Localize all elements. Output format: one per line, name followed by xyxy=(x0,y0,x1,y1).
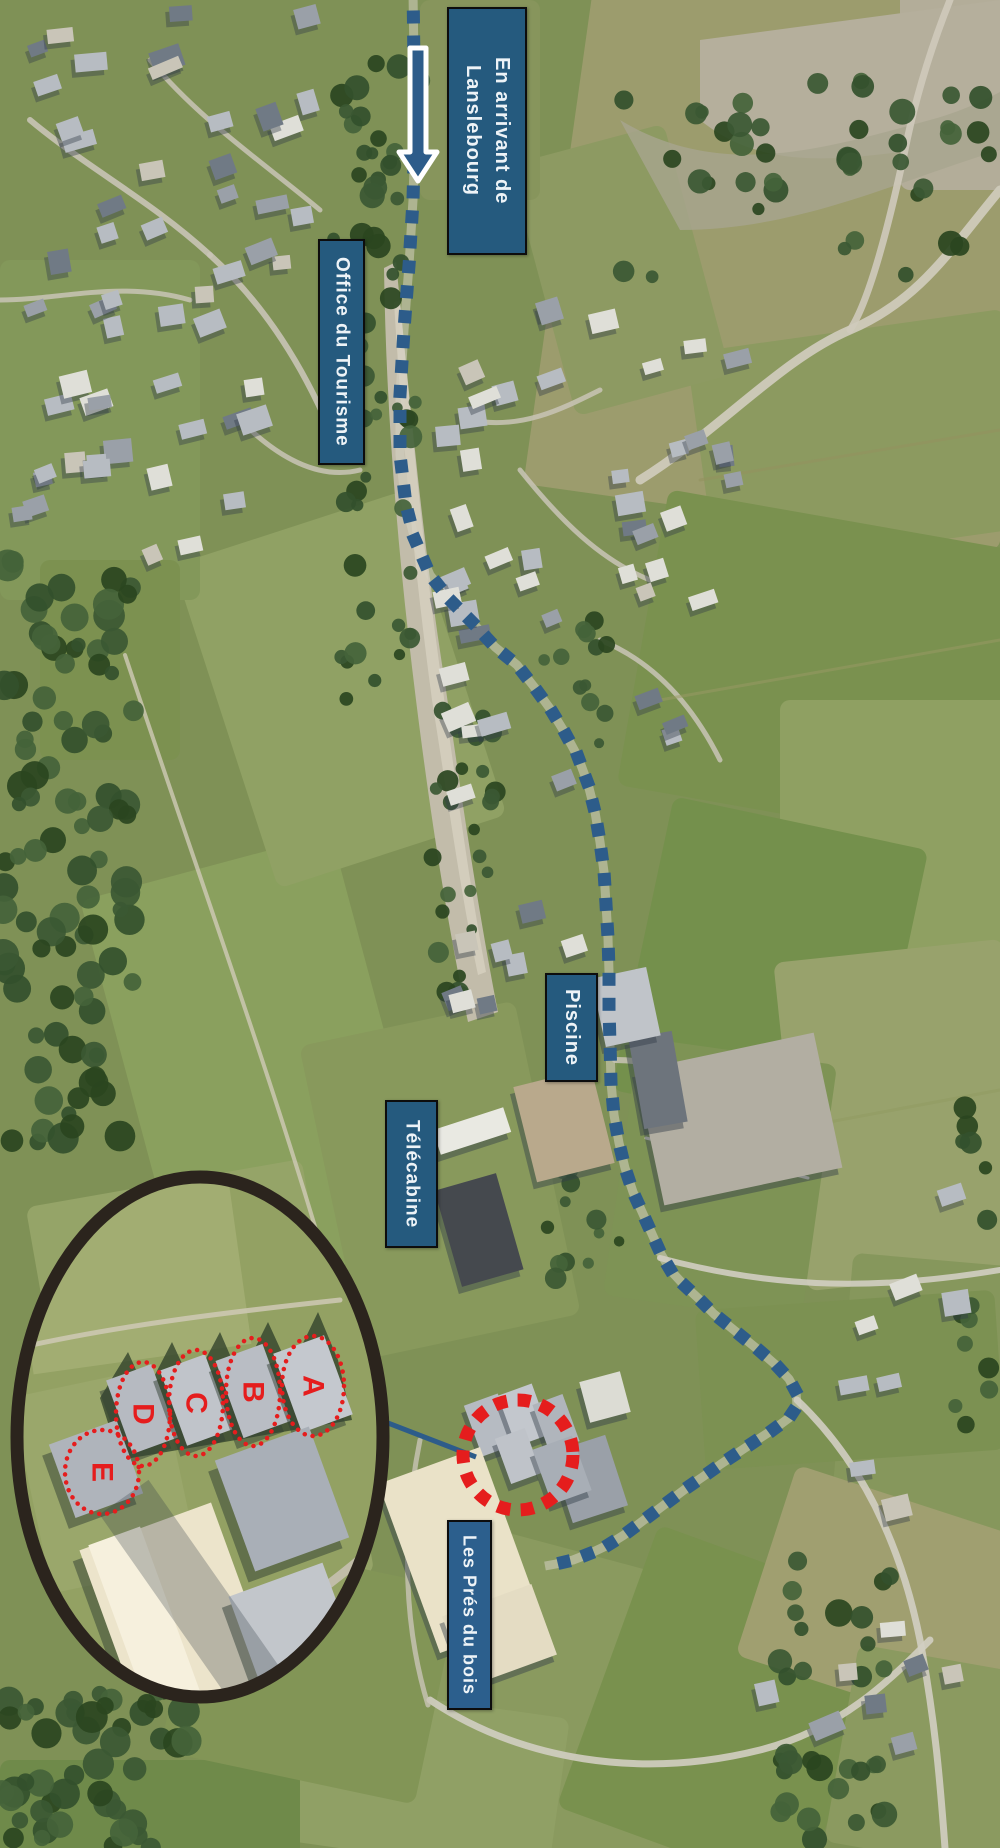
tree-blob xyxy=(685,102,707,124)
route-dash xyxy=(402,260,416,274)
route-dash xyxy=(405,210,419,224)
building xyxy=(942,1664,964,1685)
tree-blob xyxy=(594,738,604,748)
tree-blob xyxy=(778,1668,796,1686)
tree-blob xyxy=(797,1808,821,1832)
building xyxy=(864,1694,887,1715)
tree-blob xyxy=(16,911,37,932)
building-marker-C: C xyxy=(180,1392,213,1414)
building xyxy=(272,255,291,271)
tree-blob xyxy=(825,1599,853,1627)
tree-blob xyxy=(875,1660,892,1677)
tree-blob xyxy=(387,54,411,78)
tree-blob xyxy=(394,649,405,660)
tree-blob xyxy=(392,619,405,632)
tree-blob xyxy=(356,145,372,161)
tree-blob xyxy=(123,1757,146,1780)
building xyxy=(83,459,111,479)
tree-blob xyxy=(688,169,712,193)
tree-blob xyxy=(849,120,868,139)
route-dash xyxy=(407,10,420,23)
building xyxy=(435,425,461,447)
tree-blob xyxy=(764,173,783,192)
tree-blob xyxy=(101,628,128,655)
tree-blob xyxy=(868,1756,885,1773)
tree-blob xyxy=(82,711,110,739)
tree-blob xyxy=(957,1336,973,1352)
tree-blob xyxy=(77,885,100,908)
tree-blob xyxy=(541,1221,554,1234)
tree-blob xyxy=(32,939,50,957)
tree-blob xyxy=(802,1751,821,1770)
route-dash xyxy=(594,847,609,862)
tree-blob xyxy=(403,566,417,580)
route-dash xyxy=(598,873,612,887)
tree-blob xyxy=(940,120,955,135)
tree-blob xyxy=(123,700,144,721)
building-marker-D: D xyxy=(127,1403,160,1425)
tree-blob xyxy=(756,143,775,162)
tree-blob xyxy=(366,234,390,258)
tree-blob xyxy=(17,1773,34,1790)
tree-blob xyxy=(913,178,933,198)
tree-blob xyxy=(28,1027,44,1043)
tree-blob xyxy=(351,167,367,183)
tree-blob xyxy=(3,1828,24,1848)
building xyxy=(169,5,193,22)
building xyxy=(195,286,214,304)
tree-blob xyxy=(440,887,456,903)
tree-blob xyxy=(980,1380,998,1398)
tree-blob xyxy=(111,866,142,897)
tree-blob xyxy=(12,797,26,811)
tree-blob xyxy=(613,261,635,283)
label-pool: Piscine xyxy=(545,973,598,1082)
route-dash xyxy=(602,948,615,961)
tree-blob xyxy=(54,711,73,730)
tree-blob xyxy=(424,848,442,866)
tree-blob xyxy=(81,1042,107,1068)
tree-blob xyxy=(0,896,17,924)
label-arrival-line1: En arrivant de xyxy=(487,57,516,204)
tree-blob xyxy=(942,86,960,104)
building xyxy=(47,249,72,275)
tree-blob xyxy=(473,849,487,863)
tree-blob xyxy=(598,636,615,653)
building xyxy=(941,1289,971,1317)
tree-blob xyxy=(78,914,108,944)
tree-blob xyxy=(118,585,137,604)
tree-blob xyxy=(578,624,596,642)
tree-blob xyxy=(614,1236,624,1246)
tree-blob xyxy=(872,1802,898,1828)
building xyxy=(838,1663,858,1682)
route-dash xyxy=(394,410,407,423)
tree-blob xyxy=(892,154,909,171)
tree-blob xyxy=(124,973,142,991)
tree-blob xyxy=(360,472,371,483)
tree-blob xyxy=(25,583,53,611)
tree-blob xyxy=(851,1762,870,1781)
tree-blob xyxy=(428,942,449,963)
building-marker-E: E xyxy=(86,1462,119,1482)
tree-blob xyxy=(453,970,466,983)
building xyxy=(611,469,629,484)
tree-blob xyxy=(55,788,80,813)
tree-blob xyxy=(60,1114,84,1138)
tree-blob xyxy=(61,603,89,631)
tree-blob xyxy=(96,1697,113,1714)
building xyxy=(683,338,707,354)
tree-blob xyxy=(752,203,764,215)
tree-blob xyxy=(383,155,398,170)
label-gondola: Télécabine xyxy=(385,1100,438,1248)
tree-blob xyxy=(171,1726,201,1756)
tree-blob xyxy=(775,1792,799,1816)
tree-blob xyxy=(409,396,422,409)
building xyxy=(12,505,33,522)
tree-blob xyxy=(456,762,469,775)
route-dash xyxy=(407,185,420,198)
tree-blob xyxy=(614,90,633,109)
tree-blob xyxy=(476,765,489,778)
tree-blob xyxy=(596,705,613,722)
tree-blob xyxy=(2,551,24,573)
tree-blob xyxy=(339,692,353,706)
tree-blob xyxy=(87,806,113,832)
tree-blob xyxy=(581,693,599,711)
tree-blob xyxy=(586,1210,606,1230)
tree-blob xyxy=(787,1604,804,1621)
tree-blob xyxy=(74,987,94,1007)
building xyxy=(521,548,543,571)
route-dash xyxy=(599,898,613,912)
tree-blob xyxy=(10,848,27,865)
tree-blob xyxy=(105,1121,136,1152)
tree-blob xyxy=(851,75,874,98)
tree-blob xyxy=(960,1132,982,1154)
route-dash xyxy=(606,1097,620,1111)
tree-blob xyxy=(64,1765,84,1785)
route-dash xyxy=(398,310,412,324)
tree-blob xyxy=(727,112,752,137)
tree-blob xyxy=(950,237,969,256)
access-map: ABCDE En arrivant de Lanslebourg Office … xyxy=(0,0,1000,1848)
tree-blob xyxy=(579,679,591,691)
tree-blob xyxy=(351,499,363,511)
building xyxy=(74,52,108,73)
tree-blob xyxy=(779,1750,803,1774)
tree-blob xyxy=(881,1567,899,1585)
tree-blob xyxy=(1,1129,24,1152)
route-dash xyxy=(395,360,409,374)
tree-blob xyxy=(828,1778,849,1799)
tree-blob xyxy=(898,267,914,283)
aerial-backdrop: ABCDE xyxy=(0,0,1000,1848)
tree-blob xyxy=(356,601,375,620)
building xyxy=(158,303,186,326)
tree-blob xyxy=(538,654,550,666)
tree-blob xyxy=(977,1210,997,1230)
road xyxy=(30,120,210,255)
route-dash xyxy=(400,285,414,299)
tree-blob xyxy=(370,130,387,147)
tree-blob xyxy=(948,1399,962,1413)
tree-blob xyxy=(838,242,852,256)
tree-blob xyxy=(807,73,828,94)
tree-blob xyxy=(435,904,449,918)
tree-blob xyxy=(33,686,56,709)
tree-blob xyxy=(560,1196,571,1207)
tree-blob xyxy=(404,628,416,640)
building xyxy=(455,931,479,954)
tree-blob xyxy=(83,1748,114,1779)
tree-blob xyxy=(735,172,755,192)
building xyxy=(46,27,74,44)
route-dash xyxy=(603,1023,616,1036)
building-marker-A: A xyxy=(297,1375,330,1397)
route-dash xyxy=(603,973,616,986)
tree-blob xyxy=(583,1258,594,1269)
route-dash xyxy=(603,998,616,1011)
tree-blob xyxy=(24,1056,52,1084)
tree-blob xyxy=(12,1812,28,1828)
label-arrival: En arrivant de Lanslebourg xyxy=(447,7,527,255)
tree-blob xyxy=(840,152,862,174)
tree-blob xyxy=(978,1357,999,1378)
tree-blob xyxy=(363,176,387,200)
tree-blob xyxy=(105,666,119,680)
tree-blob xyxy=(464,885,476,897)
route-dash xyxy=(591,822,606,837)
tree-blob xyxy=(99,947,127,975)
building xyxy=(223,491,246,510)
tree-blob xyxy=(794,1662,812,1680)
label-tourism-office: Office du Tourisme xyxy=(318,239,365,465)
tree-blob xyxy=(888,134,907,153)
route-dash xyxy=(404,235,418,249)
tree-blob xyxy=(137,1694,156,1713)
tree-blob xyxy=(979,1161,992,1174)
tree-blob xyxy=(889,99,915,125)
tree-blob xyxy=(35,1086,64,1115)
tree-blob xyxy=(553,649,570,666)
tree-blob xyxy=(545,1268,567,1290)
tree-blob xyxy=(344,75,369,100)
tree-blob xyxy=(368,55,385,72)
tree-blob xyxy=(860,1636,875,1651)
tree-blob xyxy=(24,839,47,862)
tree-blob xyxy=(430,782,442,794)
route-dash xyxy=(601,922,615,936)
tree-blob xyxy=(344,642,366,664)
tree-blob xyxy=(732,93,753,114)
tree-blob xyxy=(16,731,33,748)
route-dash xyxy=(604,1048,617,1061)
tree-blob xyxy=(339,104,354,119)
tree-blob xyxy=(18,1704,35,1721)
building xyxy=(880,1621,906,1638)
route-dash xyxy=(397,484,411,498)
tree-blob xyxy=(794,1622,808,1636)
tree-blob xyxy=(55,654,75,674)
tree-blob xyxy=(87,1781,113,1807)
tree-blob xyxy=(31,1718,61,1748)
route-dash xyxy=(394,435,407,448)
tree-blob xyxy=(71,638,85,652)
tree-blob xyxy=(646,270,659,283)
tree-blob xyxy=(482,866,494,878)
tree-blob xyxy=(351,106,371,126)
building-marker-B: B xyxy=(237,1381,270,1403)
tree-blob xyxy=(85,1066,106,1087)
route-dash xyxy=(604,1073,617,1086)
tree-blob xyxy=(783,1581,802,1600)
tree-blob xyxy=(110,1818,138,1846)
tree-blob xyxy=(34,1830,50,1846)
tree-blob xyxy=(50,985,74,1009)
route-dash xyxy=(609,1121,624,1136)
label-arrival-line2: Lanslebourg xyxy=(458,57,487,204)
tree-blob xyxy=(67,856,97,886)
label-residence: Les Prés du bois xyxy=(447,1520,492,1710)
tree-blob xyxy=(374,391,387,404)
tree-blob xyxy=(32,624,58,650)
tree-blob xyxy=(47,1811,73,1837)
tree-blob xyxy=(22,711,42,731)
tree-blob xyxy=(482,793,499,810)
route-dash xyxy=(394,459,408,473)
tree-blob xyxy=(957,1416,975,1434)
tree-blob xyxy=(344,554,367,577)
tree-blob xyxy=(851,1606,874,1629)
tree-blob xyxy=(751,118,769,136)
tree-blob xyxy=(848,1814,865,1831)
route-dash xyxy=(393,385,407,399)
tree-blob xyxy=(390,192,404,206)
tree-blob xyxy=(380,287,402,309)
tree-blob xyxy=(468,824,480,836)
tree-blob xyxy=(368,674,381,687)
tree-blob xyxy=(981,146,997,162)
tree-blob xyxy=(788,1552,807,1571)
tree-blob xyxy=(969,86,992,109)
tree-blob xyxy=(663,150,681,168)
building xyxy=(244,377,265,397)
building xyxy=(290,206,314,227)
tree-blob xyxy=(370,408,382,420)
route-dash xyxy=(396,335,410,349)
building xyxy=(460,448,482,472)
tree-blob xyxy=(967,121,990,144)
